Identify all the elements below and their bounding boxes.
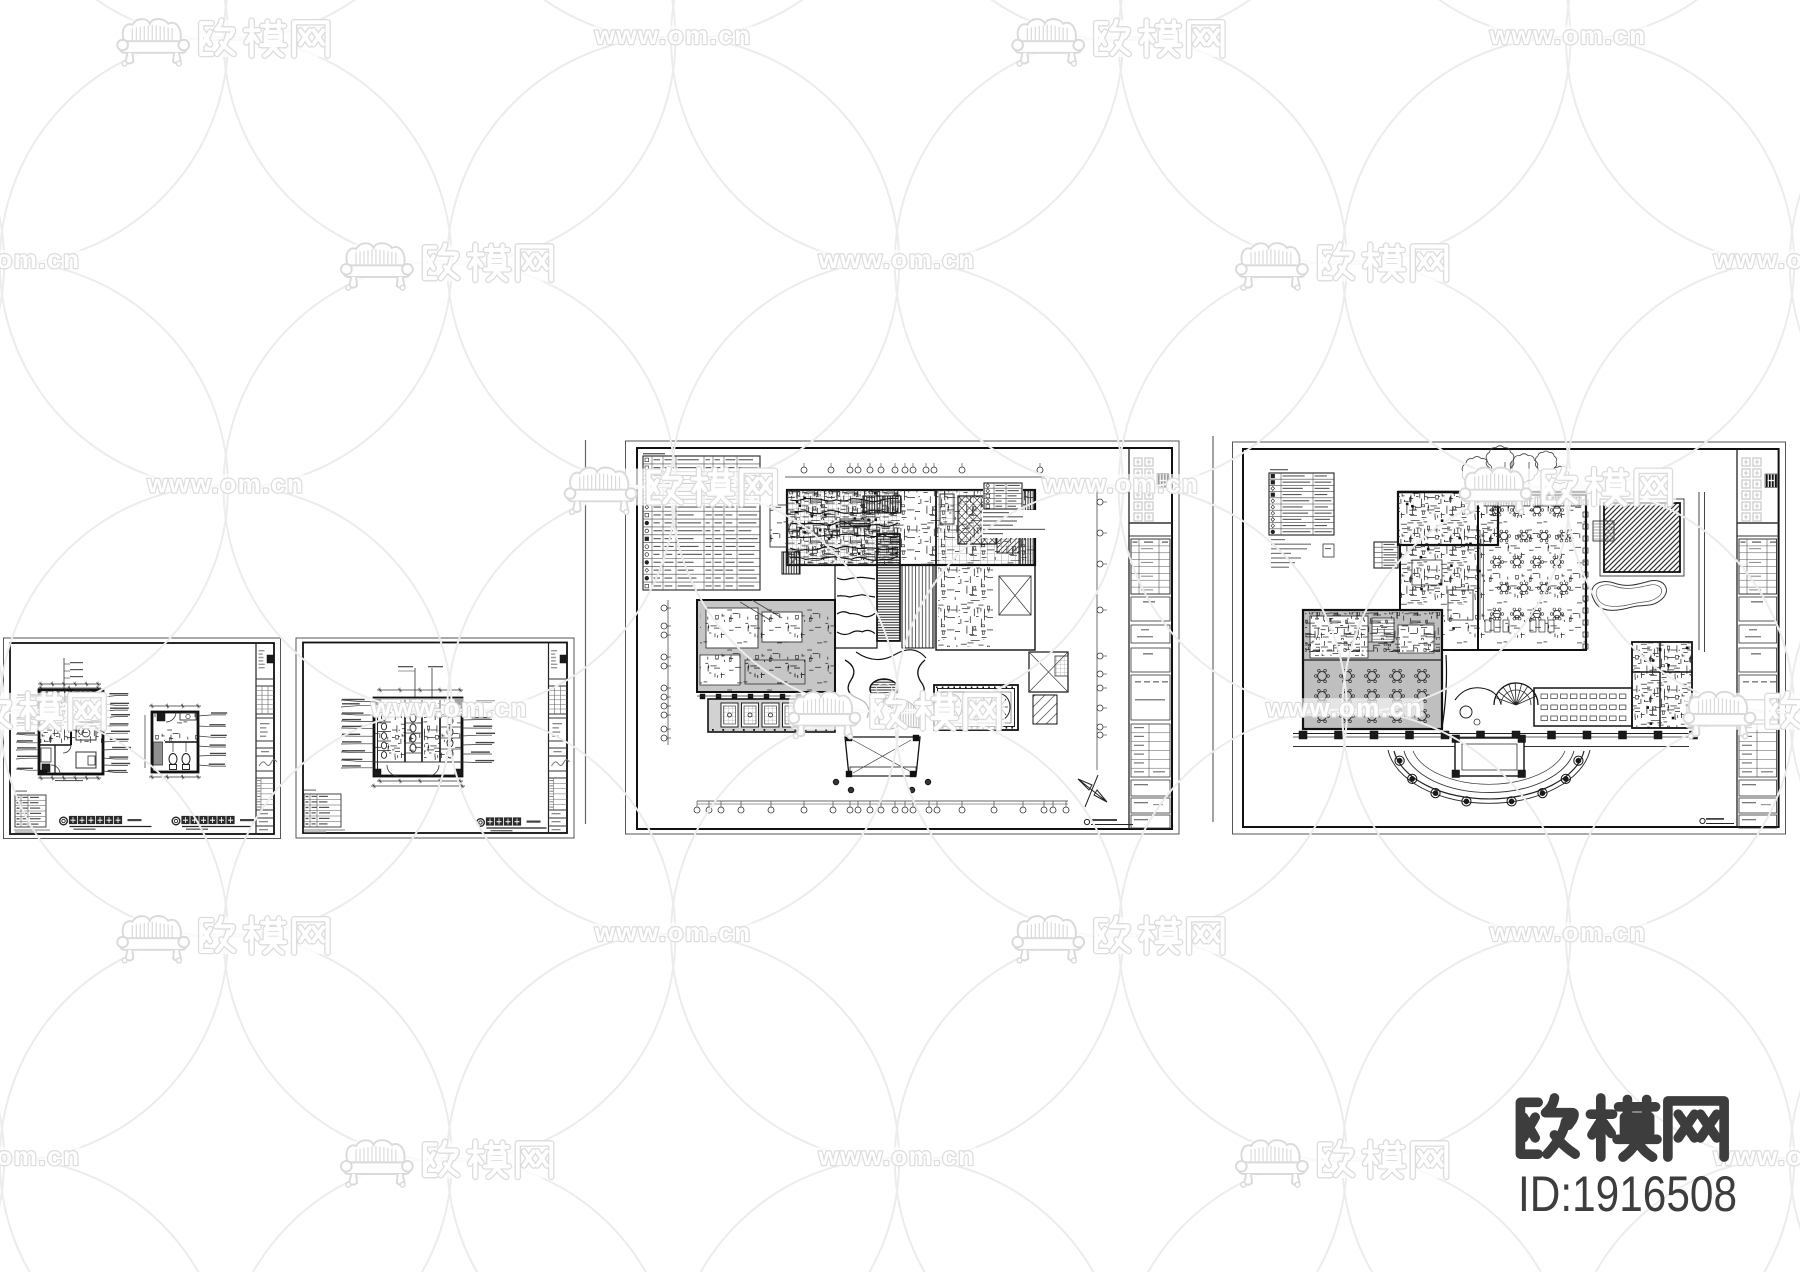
svg-text:www.om.cn: www.om.cn xyxy=(1265,693,1423,723)
svg-text:www.om.cn: www.om.cn xyxy=(594,917,752,947)
svg-text:www.om.cn: www.om.cn xyxy=(594,20,752,50)
svg-text:www.om.cn: www.om.cn xyxy=(1041,468,1199,498)
svg-text:www.om.cn: www.om.cn xyxy=(818,1141,976,1171)
svg-text:www.om.cn: www.om.cn xyxy=(1489,20,1647,50)
svg-text:www.om.cn: www.om.cn xyxy=(370,693,528,723)
svg-text:www.om.cn: www.om.cn xyxy=(818,244,976,274)
svg-text:ID:1916508: ID:1916508 xyxy=(1518,1166,1737,1222)
svg-text:www.om.cn: www.om.cn xyxy=(0,244,81,274)
svg-text:www.om.cn: www.om.cn xyxy=(146,468,304,498)
svg-text:www.om.cn: www.om.cn xyxy=(0,1141,81,1171)
svg-text:www.om.cn: www.om.cn xyxy=(1489,917,1647,947)
svg-text:www.om.cn: www.om.cn xyxy=(1713,244,1800,274)
